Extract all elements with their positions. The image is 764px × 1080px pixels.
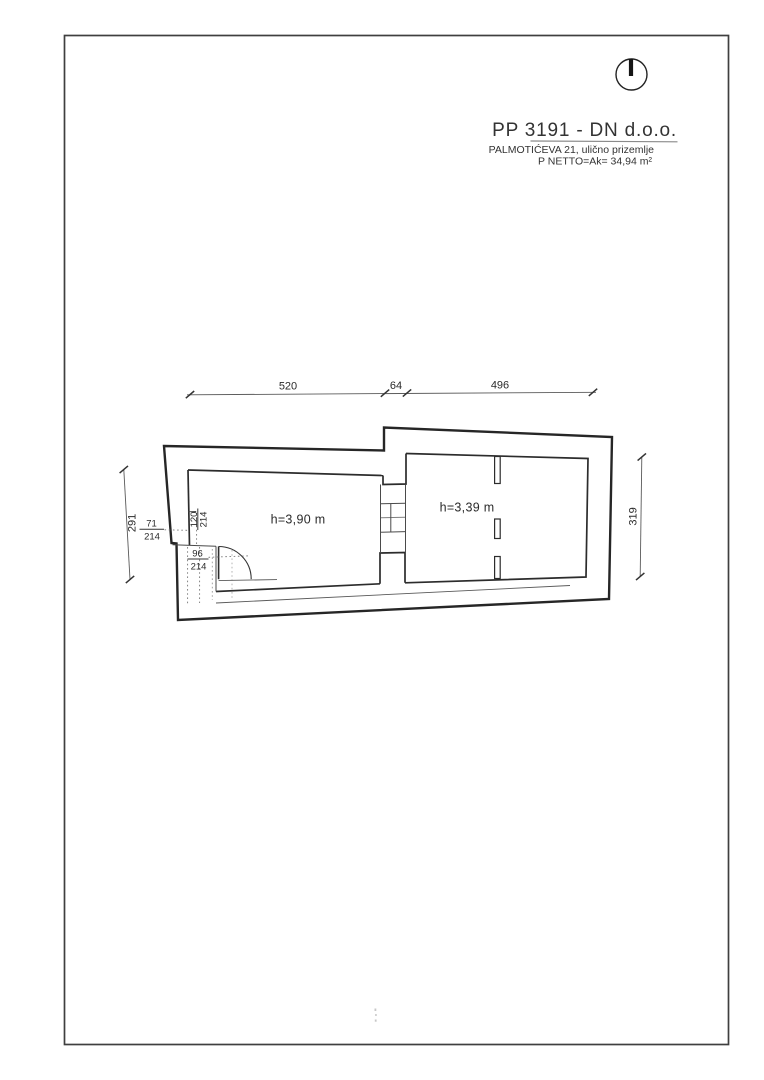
- dim-label-64: 64: [390, 380, 402, 392]
- dim-line: [640, 457, 642, 577]
- page-border: [65, 36, 729, 1045]
- door-swing-arc: [219, 547, 252, 580]
- scanned-floor-plan-page: PP 3191 - DN d.o.o. PALMOTIĆEVA 21, ulič…: [0, 0, 764, 1080]
- north-indicator-icon: [616, 59, 647, 91]
- room-right: h=3,39 m: [405, 454, 588, 583]
- opening-height: 214: [144, 532, 160, 543]
- dim-label-496: 496: [491, 380, 509, 392]
- room-left-left-wall: [188, 470, 190, 546]
- step-line: [381, 532, 406, 533]
- scan-artifact: [375, 1009, 377, 1022]
- opening-height: 214: [191, 562, 207, 573]
- wall-slit-top: [495, 457, 501, 484]
- passage-steps: [381, 485, 406, 554]
- artifact-dot: [375, 1014, 377, 1016]
- room-right-height-label: h=3,39 m: [440, 501, 495, 515]
- wall-slit-bottom: [495, 557, 501, 579]
- wall-slit-middle: [495, 519, 501, 539]
- dimension-top: 520 64 496: [186, 380, 597, 399]
- opening-dim-120-214: 120 214: [189, 509, 210, 531]
- room-left: h=3,90 m: [188, 454, 406, 592]
- project-area: P NETTO=Ak= 34,94 m²: [538, 156, 652, 168]
- opening-dim-71-214: 71 214: [140, 519, 189, 543]
- step-line: [381, 517, 406, 518]
- room-left-bottom-wall: [216, 584, 380, 592]
- project-address: PALMOTIĆEVA 21, ulično prizemlje: [489, 143, 654, 156]
- leader-dotted-line: [165, 530, 189, 531]
- passage-top-step-wall: [383, 454, 406, 485]
- leader-dotted-line: [209, 556, 251, 558]
- vestibule-top-edge: [173, 545, 217, 546]
- opening-width: 71: [146, 519, 157, 530]
- bottom-wall-inner-line: [216, 586, 570, 604]
- title-underline: [531, 141, 678, 142]
- artifact-dot: [375, 1020, 377, 1022]
- room-left-height-label: h=3,90 m: [271, 513, 326, 527]
- dim-label-520: 520: [279, 381, 297, 393]
- project-title: PP 3191 - DN d.o.o.: [492, 120, 677, 141]
- dim-label-291: 291: [127, 514, 139, 532]
- artifact-dot: [375, 1009, 377, 1012]
- floor-plan-drawing: PP 3191 - DN d.o.o. PALMOTIĆEVA 21, ulič…: [0, 0, 764, 1080]
- dim-label-319: 319: [628, 507, 640, 525]
- dimension-left: 291: [120, 466, 139, 583]
- dim-line: [187, 392, 596, 395]
- title-block: PP 3191 - DN d.o.o. PALMOTIĆEVA 21, ulič…: [489, 120, 678, 168]
- opening-height: 214: [199, 512, 210, 528]
- dimension-right: 319: [628, 453, 647, 580]
- door-threshold-line: [219, 580, 277, 581]
- passage-bottom-stub-wall: [380, 553, 405, 584]
- room-left-top-wall: [188, 470, 383, 476]
- step-line: [381, 503, 406, 504]
- opening-width: 96: [192, 549, 203, 560]
